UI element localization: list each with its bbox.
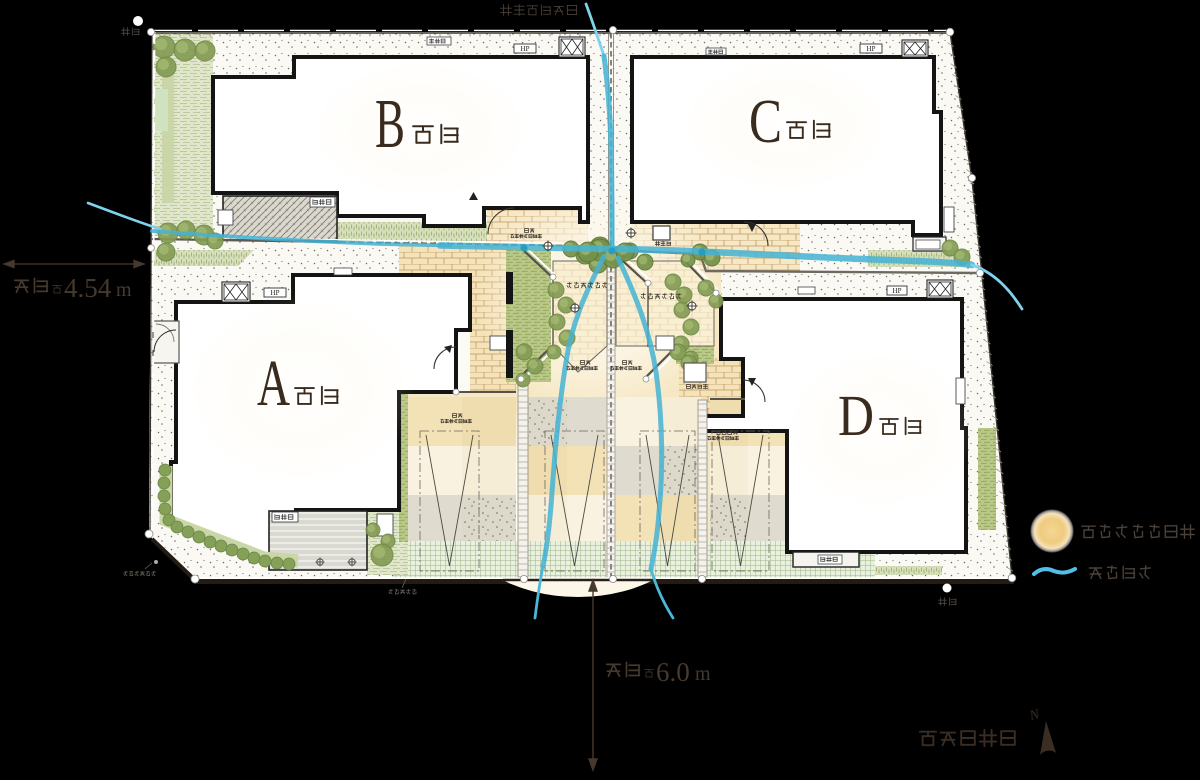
svg-text:HP: HP (867, 45, 876, 53)
svg-text:HP: HP (271, 289, 280, 297)
svg-text:HP: HP (893, 287, 902, 295)
svg-text:6.0: 6.0 (656, 657, 690, 687)
svg-text:D: D (838, 383, 874, 448)
svg-text:B: B (375, 86, 405, 163)
svg-text:4.54: 4.54 (64, 273, 112, 303)
svg-text:m: m (116, 279, 132, 301)
svg-text:C: C (749, 88, 782, 156)
svg-text:HP: HP (521, 45, 530, 53)
svg-text:m: m (695, 663, 711, 685)
svg-text:A: A (257, 347, 290, 420)
